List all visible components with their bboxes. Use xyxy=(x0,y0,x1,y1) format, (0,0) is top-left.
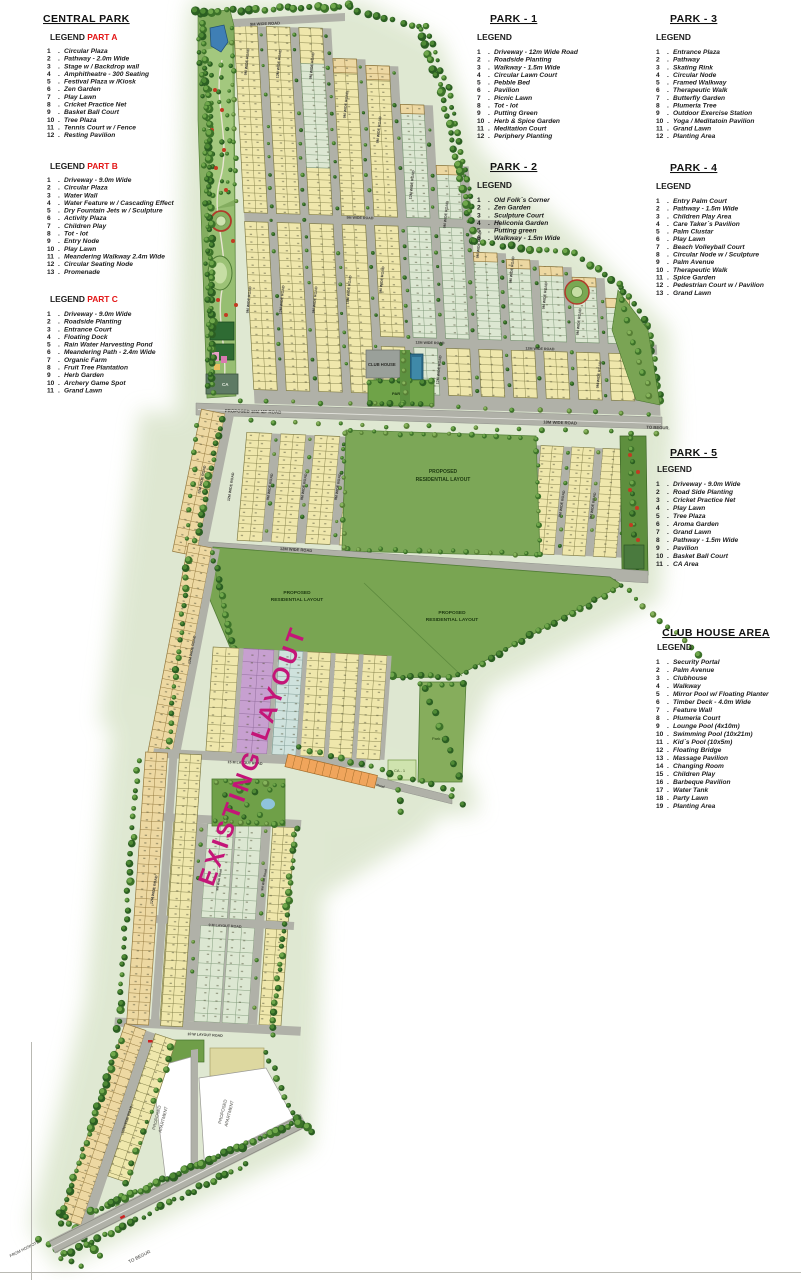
svg-text:1.Driveway - 9.0m Wide: 1.Driveway - 9.0m Wide xyxy=(47,311,132,318)
svg-text:2.Pathway - 1.5m Wide: 2.Pathway - 1.5m Wide xyxy=(656,206,738,213)
svg-text:TO BEGUR.: TO BEGUR. xyxy=(646,425,669,431)
svg-text:3.Cricket Practice Net: 3.Cricket Practice Net xyxy=(656,497,736,504)
svg-text:CA - 1: CA - 1 xyxy=(394,768,406,773)
svg-text:8.Cricket Practice Net: 8.Cricket Practice Net xyxy=(47,102,127,109)
svg-text:LEGEND: LEGEND xyxy=(656,32,691,42)
svg-text:PARK - 2: PARK - 2 xyxy=(490,161,537,173)
svg-text:11.Meandering Walkway 2.4m Wid: 11.Meandering Walkway 2.4m Wide xyxy=(47,254,165,261)
svg-text:CLUB HOUSE: CLUB HOUSE xyxy=(368,362,396,367)
svg-text:PROPOSED: PROPOSED xyxy=(429,469,458,475)
svg-text:RESIDENTIAL LAYOUT: RESIDENTIAL LAYOUT xyxy=(416,477,471,483)
svg-text:3.Walkway - 1.5m Wide: 3.Walkway - 1.5m Wide xyxy=(477,64,560,71)
svg-text:PROPOSED: PROPOSED xyxy=(283,590,311,596)
svg-text:13.Massage Pavilion: 13.Massage Pavilion xyxy=(656,755,728,762)
svg-text:7.Butterfly Garden: 7.Butterfly Garden xyxy=(656,95,725,102)
svg-text:CA: CA xyxy=(222,382,229,387)
svg-text:LEGEND: LEGEND xyxy=(657,464,692,474)
svg-text:12.Periphery Planting: 12.Periphery Planting xyxy=(477,133,552,140)
svg-text:5.Framed Walkway: 5.Framed Walkway xyxy=(656,80,727,87)
svg-text:11.Kid`s Pool (10x5m): 11.Kid`s Pool (10x5m) xyxy=(656,739,732,746)
svg-text:10.Archery Game Spot: 10.Archery Game Spot xyxy=(47,380,126,387)
svg-text:9M WIDE ROAD: 9M WIDE ROAD xyxy=(347,216,374,221)
svg-text:RESIDENTIAL LAYOUT: RESIDENTIAL LAYOUT xyxy=(426,617,479,623)
svg-text:9.Basket Ball Court: 9.Basket Ball Court xyxy=(47,109,120,116)
svg-text:PARK - 5: PARK - 5 xyxy=(670,447,717,459)
svg-text:LEGEND PART B: LEGEND PART B xyxy=(50,161,118,171)
svg-text:1.Entry Palm Court: 1.Entry Palm Court xyxy=(656,198,728,205)
svg-text:PARK - 3: PARK - 3 xyxy=(670,13,717,25)
svg-text:RESIDENTIAL LAYOUT: RESIDENTIAL LAYOUT xyxy=(271,597,324,603)
svg-text:LEGEND: LEGEND xyxy=(657,642,692,652)
svg-text:6.Therapeutic Walk: 6.Therapeutic Walk xyxy=(656,87,728,94)
svg-text:10.Therapeutic Walk: 10.Therapeutic Walk xyxy=(656,267,728,274)
svg-text:16.Barbeque Pavilion: 16.Barbeque Pavilion xyxy=(656,779,731,786)
svg-text:PARK - 1: PARK - 1 xyxy=(490,13,537,25)
svg-text:CENTRAL PARK: CENTRAL PARK xyxy=(43,13,130,25)
svg-text:12M WIDE ROAD: 12M WIDE ROAD xyxy=(526,347,555,352)
svg-text:PROPOSED: PROPOSED xyxy=(438,610,466,616)
svg-text:LEGEND: LEGEND xyxy=(477,180,512,190)
svg-text:CLUB HOUSE AREA: CLUB HOUSE AREA xyxy=(662,627,770,639)
svg-text:8.Fruit Tree Plantation: 8.Fruit Tree Plantation xyxy=(47,365,128,372)
svg-text:12.Resting Pavilion: 12.Resting Pavilion xyxy=(47,132,115,139)
svg-text:11.CA Area: 11.CA Area xyxy=(656,561,699,568)
svg-text:2.Roadside Planting: 2.Roadside Planting xyxy=(477,57,552,64)
svg-text:LEGEND PART A: LEGEND PART A xyxy=(50,32,117,42)
svg-text:8.Pathway - 1.5m Wide: 8.Pathway - 1.5m Wide xyxy=(656,537,738,544)
svg-text:LEGEND PART C: LEGEND PART C xyxy=(50,294,118,304)
svg-text:10.Herb & Spice Garden: 10.Herb & Spice Garden xyxy=(477,118,560,125)
svg-text:2.Road Side Planting: 2.Road Side Planting xyxy=(656,489,733,496)
svg-text:4.Water Feature w / Cascading: 4.Water Feature w / Cascading Effect xyxy=(47,200,174,207)
svg-text:LEGEND: LEGEND xyxy=(656,181,691,191)
svg-text:1.Driveway - 9.0m Wide: 1.Driveway - 9.0m Wide xyxy=(47,177,132,184)
svg-text:5.Mirror Pool w/ Floating Plan: 5.Mirror Pool w/ Floating Planter xyxy=(656,691,769,698)
svg-text:1.Driveway - 9.0m Wide: 1.Driveway - 9.0m Wide xyxy=(656,481,741,488)
svg-text:12M WIDE ROAD: 12M WIDE ROAD xyxy=(416,341,445,346)
svg-text:10.Basket Ball Court: 10.Basket Ball Court xyxy=(656,553,729,560)
svg-text:9.Lounge Pool (4x10m): 9.Lounge Pool (4x10m) xyxy=(656,723,740,730)
svg-text:1.Old Folk`s Corner: 1.Old Folk`s Corner xyxy=(477,197,550,204)
svg-text:3.Sculpture Court: 3.Sculpture Court xyxy=(477,212,545,219)
svg-text:6.Walkway - 1.5m Wide: 6.Walkway - 1.5m Wide xyxy=(477,235,560,242)
svg-text:4.Circular Lawn Court: 4.Circular Lawn Court xyxy=(477,72,558,79)
svg-text:LEGEND: LEGEND xyxy=(477,32,512,42)
svg-text:2.Pathway - 2.0m Wide: 2.Pathway - 2.0m Wide xyxy=(47,56,129,63)
svg-text:4.Heliconia Garden: 4.Heliconia Garden xyxy=(477,220,548,227)
svg-text:14.Changing Room: 14.Changing Room xyxy=(656,763,724,770)
svg-text:2.Roadside Planting: 2.Roadside Planting xyxy=(47,319,122,326)
svg-text:3.Children Play Area: 3.Children Play Area xyxy=(656,213,732,220)
svg-text:12.Pedestrian Court w / Pavili: 12.Pedestrian Court w / Pavilion xyxy=(656,282,764,289)
svg-text:PARK - 4: PARK - 4 xyxy=(670,162,717,174)
svg-text:11.Meditation Court: 11.Meditation Court xyxy=(477,126,547,133)
svg-text:6.Meandering Path - 2.4m Wide: 6.Meandering Path - 2.4m Wide xyxy=(47,349,156,356)
svg-text:4.Care Taker`s Pavilion: 4.Care Taker`s Pavilion xyxy=(656,221,740,228)
svg-text:5.Dry Fountain Jets w / Sculpt: 5.Dry Fountain Jets w / Sculpture xyxy=(47,208,163,215)
